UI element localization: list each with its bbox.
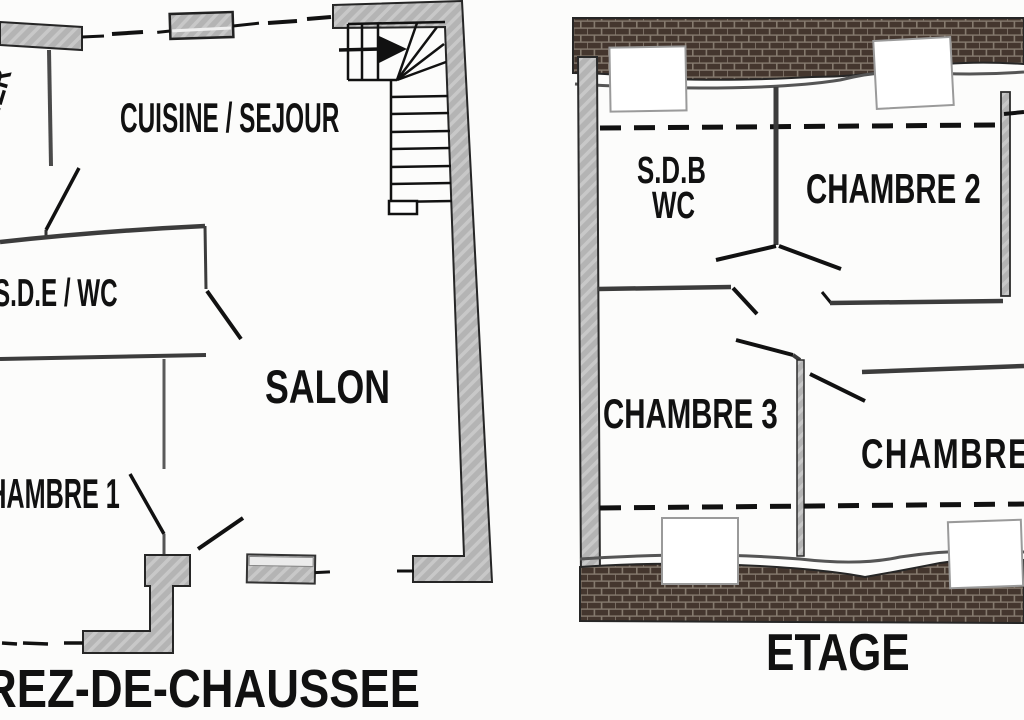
bottom-wall-dashes (2, 643, 83, 644)
exterior-wall-top-left (0, 22, 104, 50)
dormer-window-2 (873, 37, 953, 109)
stair-landing-box (389, 201, 417, 214)
room-label-chambre1: CHAMBRE 1 (0, 473, 120, 515)
chambre2-bottom-wall (822, 292, 1003, 303)
floor-plan-canvas: CELLIER CUISINE / SEJOUR S.D.E / WC SALO… (0, 0, 1024, 720)
knee-wall-dashed-top (600, 125, 998, 128)
door-swing-landing-1 (733, 288, 757, 314)
stair-winder-fan (397, 23, 446, 80)
door-swing-chambre1 (130, 474, 164, 534)
chambre1-partition (130, 359, 243, 557)
room-label-chambre3: CHAMBRE 3 (603, 393, 778, 435)
room-label-sde-wc: S.D.E / WC (0, 274, 118, 313)
door-swing-salon-entry (198, 518, 243, 549)
exterior-wall-left-upper (578, 57, 600, 583)
chambre4-top-wall (862, 366, 1024, 372)
window-top (157, 11, 260, 39)
cellier-partition (46, 50, 79, 239)
exterior-wall-step-bottom (83, 555, 190, 653)
dormer-window-3 (662, 518, 738, 584)
exterior-wall-right (333, 1, 492, 582)
staircase (339, 22, 452, 214)
room-label-chambre2: CHAMBRE 2 (806, 168, 981, 210)
upper-floor-plan (573, 18, 1024, 623)
dormer-window-4 (948, 520, 1023, 589)
door-swing-cellier (46, 168, 79, 230)
knee-wall-dashed-bottom (600, 504, 1024, 508)
door-swing-chambre2 (779, 246, 841, 269)
door-swing-chambre3 (736, 340, 793, 355)
floor-title-upper: ETAGE (766, 627, 910, 679)
sdb-bottom-wall (598, 287, 757, 314)
door-swing-sde (207, 291, 241, 339)
room-label-salon: SALON (265, 363, 390, 410)
stair-lower-flight (391, 80, 452, 206)
interior-wall-right (1001, 92, 1024, 296)
room-label-cuisine-sejour: CUISINE / SEJOUR (120, 97, 339, 139)
door-swing-sdb (716, 246, 776, 260)
room-label-chambre4: CHAMBRE (861, 433, 1024, 475)
window-bottom (247, 554, 330, 583)
room-label-wc: WC (652, 187, 695, 225)
chambre3-right-wall (797, 360, 804, 556)
door-swing-chambre4 (810, 374, 865, 401)
dormer-window-1 (609, 46, 686, 111)
floor-title-ground: REZ-DE-CHAUSSEE (0, 662, 420, 716)
